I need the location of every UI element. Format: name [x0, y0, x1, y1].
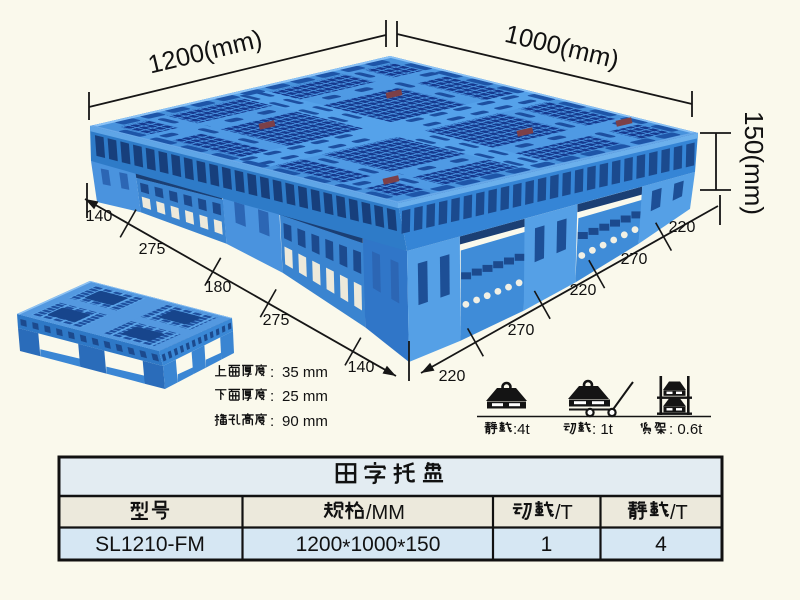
- svg-text:140: 140: [86, 208, 113, 225]
- svg-text:150(mm): 150(mm): [739, 111, 769, 215]
- svg-text:270: 270: [621, 251, 648, 268]
- svg-text:/T: /T: [555, 502, 573, 524]
- svg-text::: :: [270, 364, 274, 381]
- svg-text:270: 270: [508, 322, 535, 339]
- svg-text:220: 220: [669, 219, 696, 236]
- svg-text:4: 4: [655, 533, 667, 556]
- svg-text::: :: [270, 388, 274, 405]
- svg-text:220: 220: [570, 282, 597, 299]
- svg-text:/MM: /MM: [366, 502, 405, 524]
- svg-text::4t: :4t: [513, 421, 531, 438]
- svg-text:: 0.6t: : 0.6t: [669, 421, 703, 438]
- svg-text:180: 180: [205, 279, 232, 296]
- svg-text::: :: [270, 413, 274, 430]
- svg-text:/T: /T: [670, 502, 688, 524]
- svg-text:220: 220: [439, 368, 466, 385]
- svg-text:: 1t: : 1t: [592, 421, 614, 438]
- svg-text:1: 1: [541, 533, 553, 556]
- svg-text:275: 275: [263, 312, 290, 329]
- svg-text:1200*1000*150: 1200*1000*150: [296, 533, 441, 559]
- svg-text:35 mm: 35 mm: [282, 364, 328, 381]
- svg-text:140: 140: [348, 359, 375, 376]
- svg-text:275: 275: [139, 241, 166, 258]
- svg-text:SL1210-FM: SL1210-FM: [95, 533, 205, 556]
- svg-text:25 mm: 25 mm: [282, 388, 328, 405]
- svg-text:90 mm: 90 mm: [282, 413, 328, 430]
